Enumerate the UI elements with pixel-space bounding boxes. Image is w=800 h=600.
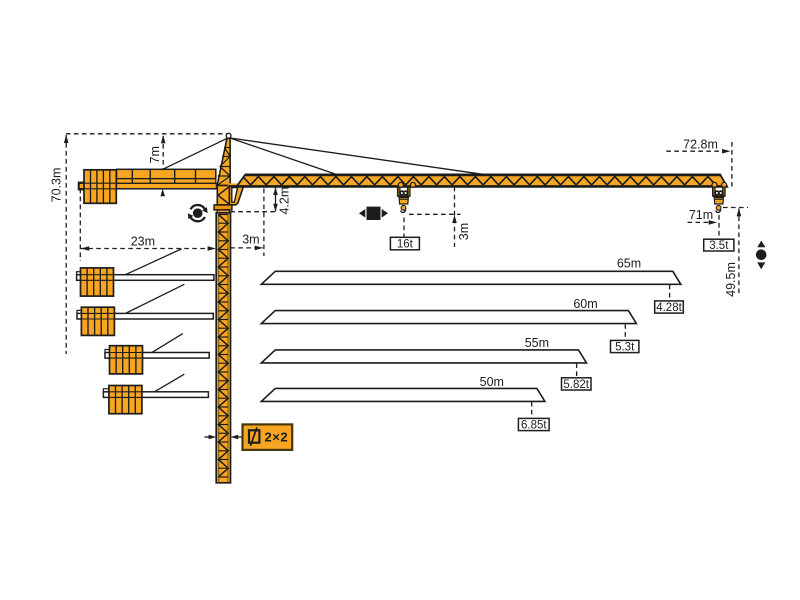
svg-text:50m: 50m xyxy=(480,375,504,389)
svg-text:60m: 60m xyxy=(573,297,597,311)
svg-text:49.5m: 49.5m xyxy=(724,262,738,297)
svg-text:7m: 7m xyxy=(148,146,162,163)
svg-text:4.28t: 4.28t xyxy=(656,302,682,314)
svg-text:3m: 3m xyxy=(457,223,471,240)
svg-text:2×2: 2×2 xyxy=(265,429,289,444)
svg-text:23m: 23m xyxy=(131,234,155,248)
svg-text:3m: 3m xyxy=(242,233,259,247)
svg-text:70.3m: 70.3m xyxy=(50,168,64,203)
svg-text:71m: 71m xyxy=(689,208,713,222)
svg-text:5.82t: 5.82t xyxy=(563,379,589,391)
svg-text:65m: 65m xyxy=(617,257,641,271)
svg-text:5.3t: 5.3t xyxy=(615,342,635,354)
svg-text:72.8m: 72.8m xyxy=(683,137,718,151)
svg-text:6.85t: 6.85t xyxy=(521,420,547,432)
svg-text:4.2m: 4.2m xyxy=(278,187,292,215)
svg-text:16t: 16t xyxy=(397,239,414,251)
svg-text:55m: 55m xyxy=(525,336,549,350)
svg-text:3.5t: 3.5t xyxy=(709,240,729,252)
